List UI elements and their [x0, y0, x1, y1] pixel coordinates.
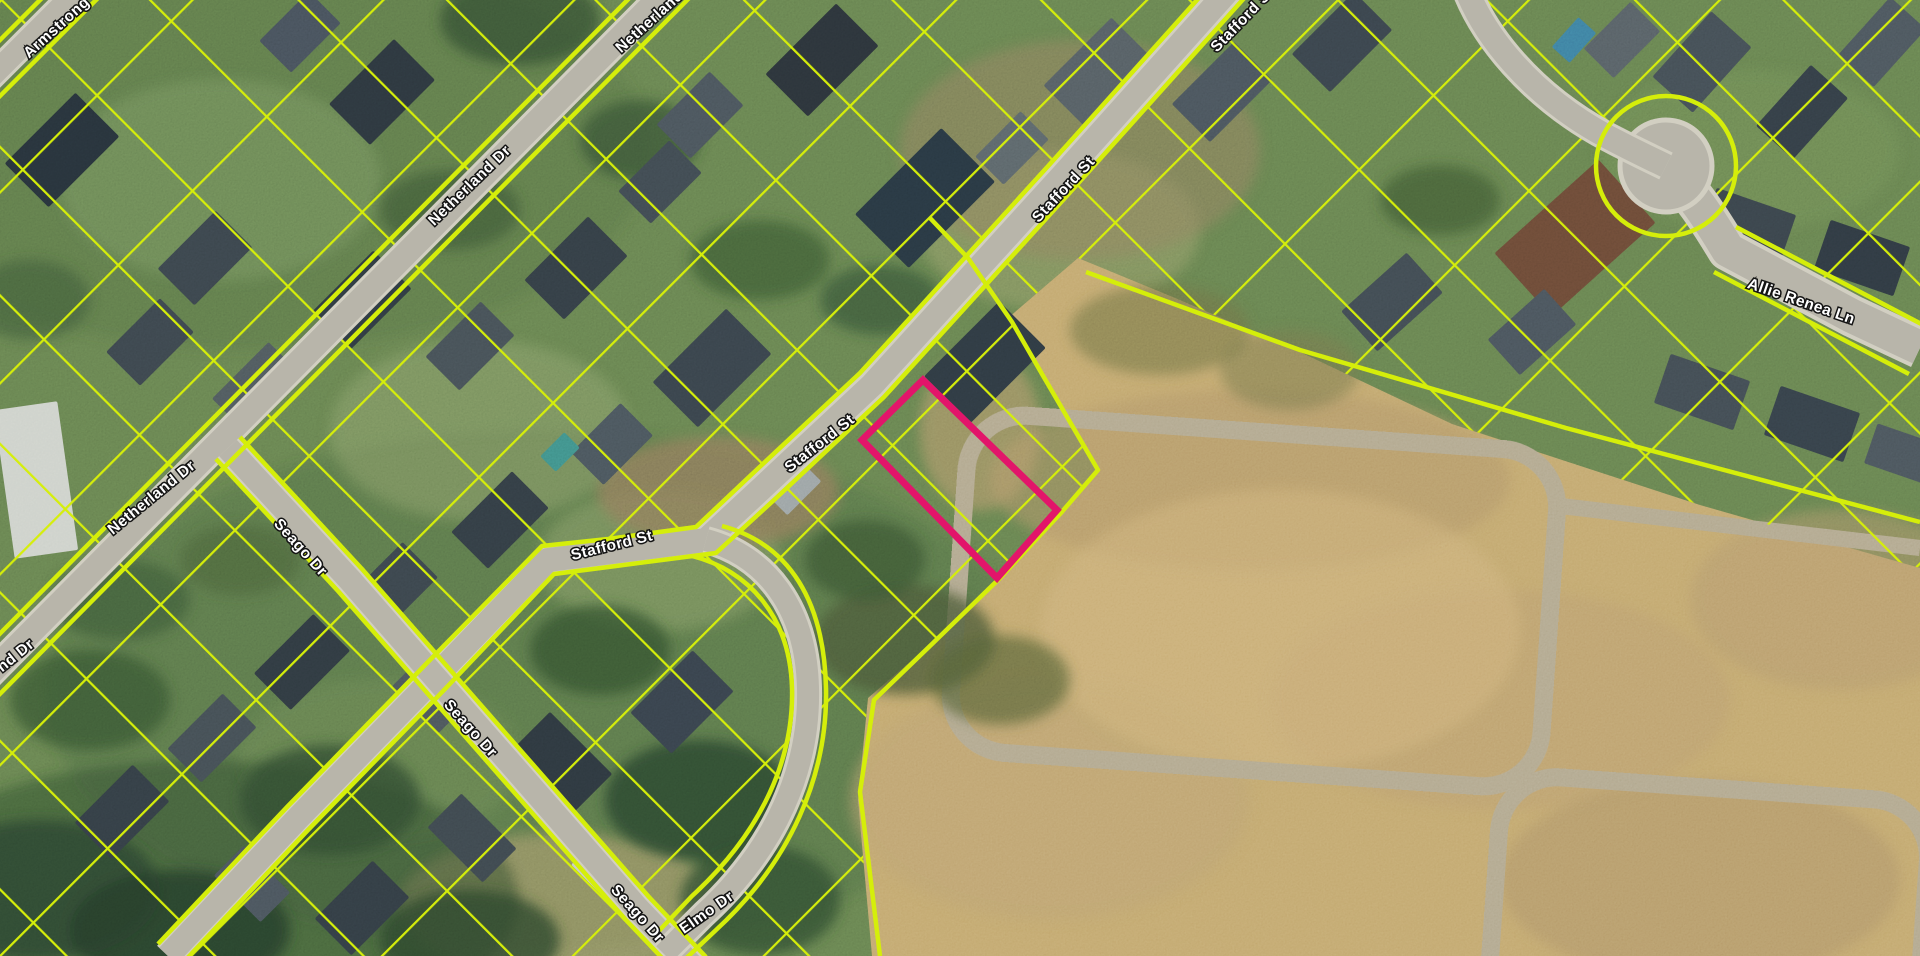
map-canvas[interactable]: ArmstrongNetherlandNetherland DrNetherla… — [0, 0, 1920, 956]
map-viewport[interactable]: ArmstrongNetherlandNetherland DrNetherla… — [0, 0, 1920, 956]
terrain-patch — [1040, 490, 1520, 770]
terrain-patch — [930, 635, 1070, 725]
